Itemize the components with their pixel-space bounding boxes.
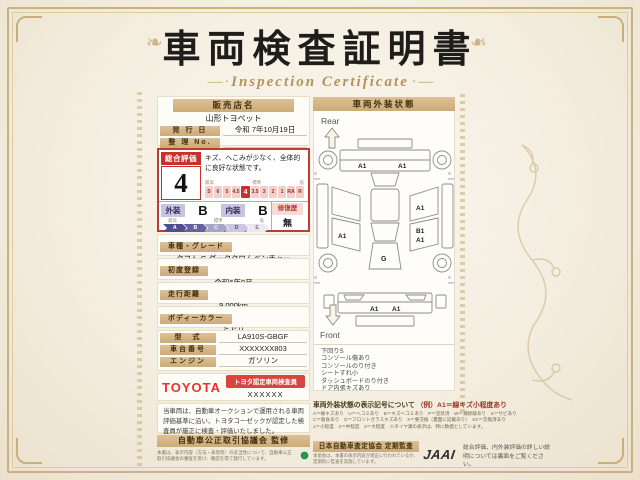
rear-label: Rear <box>321 116 340 126</box>
damage-mark: A1 <box>370 306 379 313</box>
scale-cell: 2 <box>269 186 277 198</box>
exterior-condition-panel: 車両外装状態 <box>313 97 455 391</box>
condition-note: ダッシュボードのり付き <box>321 378 454 385</box>
scale-cell: R <box>296 186 304 198</box>
grade-scale: A B C D E <box>163 224 269 232</box>
flourish-ornament <box>492 140 602 410</box>
condition-note: ドア内張キズあり <box>321 385 454 392</box>
vehicle-info-column: 販売店名 山形トヨペット 発 行 日 令和 7年10月19日 整 理 No. 総… <box>157 96 310 462</box>
tread-mark: S <box>314 171 317 176</box>
scale-cell: 4.5 <box>232 186 240 198</box>
grade-cell: A <box>163 224 187 232</box>
flourish-ornament: ❧ <box>146 30 163 55</box>
issue-date-value: 令和 7年10月19日 <box>223 125 307 136</box>
field-engine: エンジン ガソリン <box>160 356 307 367</box>
exterior-grade: B <box>187 202 219 219</box>
certified-inspector-badge: トヨタ認定車両検査員 <box>226 375 305 388</box>
inspector-badge-block: トヨタ認定車両検査員 XXXXXX <box>226 375 305 399</box>
legend-line: 1＝小程度 2＝中程度 3＝大程度 ※タイヤ溝の表示は、特に数値としています。 <box>313 424 553 430</box>
scale-cell: 1 <box>278 186 286 198</box>
flourish-left: — · <box>208 74 232 90</box>
title-block: 車両検査証明書 — · Inspection Certificate · — <box>0 18 640 91</box>
condition-notes: 下回りS コンソール傷あり コンソールのり付き シートすれ小 ダッシュボードのり… <box>314 344 454 390</box>
tread-mark: S <box>448 171 451 176</box>
field-label: ボディーカラー <box>160 314 232 324</box>
tread-mark: S <box>314 275 317 280</box>
exterior-label: 外装 <box>161 204 185 217</box>
field-value: LA910S-GBGF <box>219 332 307 343</box>
scale-cell: 3.5 <box>251 186 259 198</box>
corner-ornament <box>598 438 624 464</box>
inspector-card: TOYOTA トヨタ認定車両検査員 XXXXXX <box>157 373 310 401</box>
back-side-note: 総合評価、内外装評価の詳しい説明については裏面をご覧ください。 <box>463 444 551 470</box>
grade-cell: B <box>184 224 208 232</box>
lace-border-right <box>460 94 465 414</box>
overall-evaluation-score: 4 <box>161 166 201 200</box>
ref-no-row: 整 理 No. <box>160 137 307 148</box>
legend-title: 車両外装状態の表示記号について <box>313 402 415 409</box>
scale-cell: RA <box>287 186 295 198</box>
damage-mark: A1 <box>358 163 367 170</box>
appraisal-audit-block: 日本自動車査定協会 定期監査 本協会は、本書の表示内容が適正に行われているか、定… <box>313 441 455 464</box>
field-chassis-no: 車台番号 XXXXXXX803 <box>160 344 307 355</box>
divider <box>159 201 308 202</box>
repair-history-value: 無 <box>272 216 303 230</box>
spec-rows-card: 型 式 LA910S-GBGF 車台番号 XXXXXXX803 エンジン ガソリ… <box>157 330 310 371</box>
field-label: 型 式 <box>160 333 216 343</box>
issue-date-label: 発 行 日 <box>160 126 220 136</box>
audit-header: 日本自動車査定協会 定期監査 <box>313 441 419 452</box>
toyota-logo: TOYOTA <box>162 380 226 395</box>
grade-cell: D <box>225 224 249 232</box>
evaluation-scale: S 6 5 4.5 4 3.5 3 2 1 RA R <box>205 186 304 198</box>
symbol-legend: 車両外装状態の表示記号について （例）A1＝線キズ小程度あり A＝線キズあり U… <box>313 402 553 430</box>
damage-mark: A1 <box>338 233 347 240</box>
tread-unit: mm <box>448 177 454 181</box>
overall-evaluation-label: 総合評価 <box>161 152 201 165</box>
car-damage-diagram: Rear Front A1 A1 A1 A1 B1 A1 G A1 A1 S m… <box>314 111 454 344</box>
fair-trade-note: 本書は、表示内容（方法・表現等）の妥当性について、自動車公正取引協議会の審査を受… <box>157 450 296 461</box>
field-first-registration: 初度登録 令和6年9月 <box>157 258 310 280</box>
flourish-right: · — <box>409 74 433 90</box>
car-diagram-svg: Rear Front A1 A1 A1 A1 B1 A1 G A1 A1 S m… <box>314 111 456 344</box>
ref-no-value <box>223 137 307 148</box>
fair-trade-note-row: 本書は、表示内容（方法・表現等）の妥当性について、自動車公正取引協議会の審査を受… <box>157 449 310 462</box>
field-mileage: 走行距離 9,000km <box>157 282 310 304</box>
subtitle-text: Inspection Certificate <box>231 74 409 90</box>
field-label: エンジン <box>160 357 216 367</box>
tread-unit: mm <box>314 281 320 285</box>
condition-note: シートすれ小 <box>321 370 454 377</box>
rear-arrow-icon <box>325 128 339 148</box>
grade-cell: E <box>245 224 269 232</box>
issue-date-row: 発 行 日 令和 7年10月19日 <box>160 125 307 136</box>
damage-mark: A1 <box>398 163 407 170</box>
scale-cell-selected: 4 <box>241 186 250 198</box>
audit-note: 本協会は、本書の表示内容が適正に行われているか、定期的に監査を実施しています。 <box>313 453 419 464</box>
field-label: 走行距離 <box>160 290 208 300</box>
exterior-panel-header: 車両外装状態 <box>313 97 455 111</box>
lace-border-left <box>137 92 142 468</box>
certificate-page: 車両検査証明書 — · Inspection Certificate · — ❧… <box>0 0 640 480</box>
exterior-panel-body: Rear Front A1 A1 A1 A1 B1 A1 G A1 A1 S m… <box>313 111 455 391</box>
tread-mark: S <box>448 275 451 280</box>
tread-unit: mm <box>448 281 454 285</box>
legend-example: （例）A1＝線キズ小程度あり <box>417 402 507 409</box>
corner-ornament <box>16 438 42 464</box>
ref-no-label: 整 理 No. <box>160 138 220 148</box>
legend-header: 車両外装状態の表示記号について （例）A1＝線キズ小程度あり <box>313 402 553 411</box>
front-label: Front <box>320 330 340 340</box>
damage-mark: G <box>381 256 387 263</box>
scale-cell: 5 <box>223 186 231 198</box>
field-model-grade: 車種・グレード タフト G ダーククロムベンチャー <box>157 234 310 256</box>
grade-cell: C <box>204 224 228 232</box>
repair-history-label: 修復歴 <box>272 203 303 215</box>
damage-mark: A1 <box>416 237 425 244</box>
flourish-ornament: ❧ <box>470 30 487 55</box>
interior-label: 内装 <box>221 204 245 217</box>
dealer-header: 販売店名 <box>173 99 294 112</box>
evaluation-comment: キズ、へこみが少なく、全体的に良好な状態です。 <box>205 154 304 174</box>
field-model-code: 型 式 LA910S-GBGF <box>160 332 307 343</box>
audit-text-block: 日本自動車査定協会 定期監査 本協会は、本書の表示内容が適正に行われているか、定… <box>313 441 419 464</box>
page-subtitle: — · Inspection Certificate · — <box>0 74 640 91</box>
damage-mark: B1 <box>416 228 425 235</box>
damage-mark: A1 <box>392 306 401 313</box>
tread-unit: mm <box>314 177 320 181</box>
damage-mark: A1 <box>416 205 425 212</box>
field-value: XXXXXXX803 <box>219 344 307 355</box>
overall-evaluation-box: 総合評価 4 キズ、へこみが少なく、全体的に良好な状態です。 最高 標準 低 S… <box>157 148 310 232</box>
disclaimer-text: 当車両は、自動車オークションで運用される車両評価基準に沿い、トヨタコーゼックが認… <box>157 403 310 433</box>
field-label: 初度登録 <box>160 266 208 276</box>
scale-cell: 6 <box>214 186 222 198</box>
field-label: 車種・グレード <box>160 242 232 252</box>
dealer-name: 山形トヨペット <box>158 112 309 125</box>
scale-cell: S <box>205 186 213 198</box>
fair-trade-council-mark-icon <box>299 450 310 461</box>
scale-cell: 3 <box>260 186 268 198</box>
fair-trade-council-header: 自動車公正取引協議会 監修 <box>157 435 310 447</box>
dealer-card: 販売店名 山形トヨペット 発 行 日 令和 7年10月19日 整 理 No. <box>157 96 310 146</box>
field-value: ガソリン <box>219 356 307 367</box>
condition-note: コンソール傷あり <box>321 355 454 362</box>
field-label: 車台番号 <box>160 345 216 355</box>
jaai-logo: JAAI <box>418 447 456 464</box>
page-title: 車両検査証明書 <box>0 18 640 73</box>
inspector-code: XXXXXX <box>226 390 305 399</box>
field-body-color: ボディーカラー ミドリ <box>157 306 310 328</box>
